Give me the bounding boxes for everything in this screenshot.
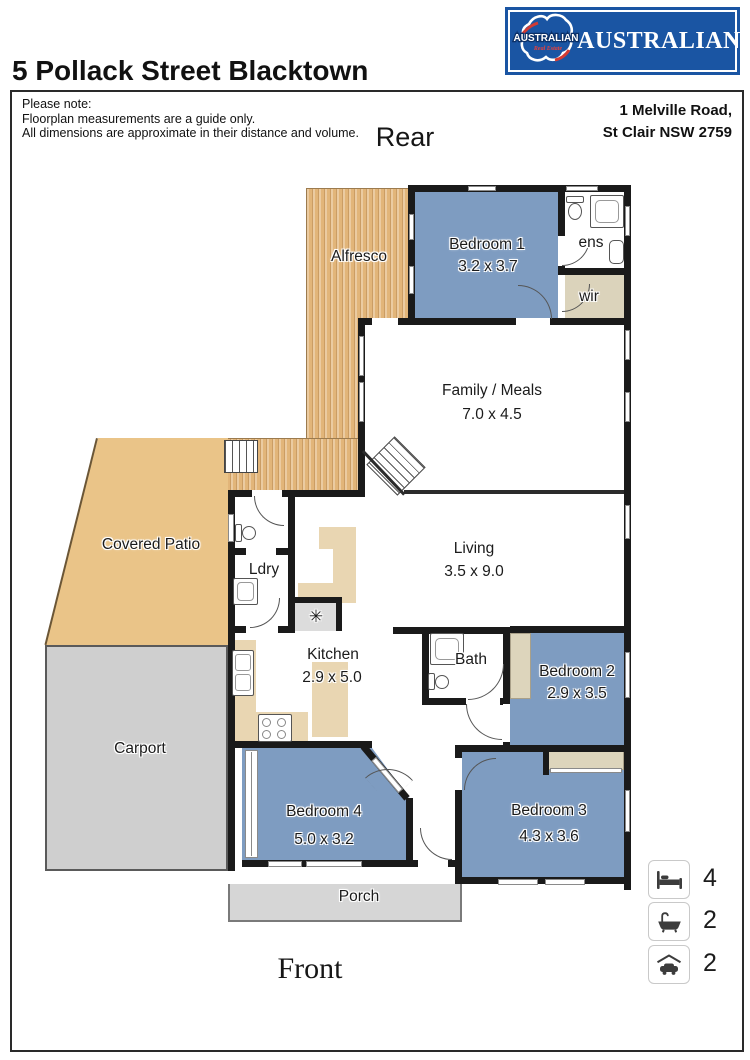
bathrooms-count: 2: [698, 906, 722, 935]
wall: [288, 490, 295, 633]
deck-strip: [306, 322, 358, 438]
door-opening: [455, 758, 462, 790]
stove-burner: [262, 730, 271, 739]
toilet-icon: [566, 196, 584, 203]
bed-icon: [656, 870, 683, 890]
stove-burner: [262, 718, 271, 727]
kitchen-pantry: [319, 527, 356, 549]
bedrooms-summary-box: [648, 860, 690, 899]
sliding-door: [359, 336, 364, 376]
robe-slider: [550, 768, 622, 773]
wall: [455, 877, 631, 884]
stove-burner: [277, 718, 286, 727]
patio-stairs: [224, 440, 258, 473]
laundry-trough-icon: [237, 582, 254, 601]
window: [498, 879, 538, 885]
car-icon: [656, 954, 682, 976]
room-label-bedroom2: Bedroom 2: [539, 663, 615, 681]
carport-area: [45, 645, 228, 871]
bedroom2-robe: [510, 633, 531, 699]
window: [409, 266, 414, 294]
window: [409, 214, 414, 240]
floorplan: ✳: [0, 0, 750, 1060]
window: [625, 790, 630, 832]
kitchen-pantry: [333, 547, 356, 585]
wall: [543, 745, 549, 775]
window: [545, 879, 585, 885]
wall: [404, 490, 624, 494]
room-label-family: Family / Meals: [442, 382, 542, 400]
slider-track: [251, 752, 252, 856]
wall: [558, 268, 624, 275]
kitchen-sink-icon: [235, 654, 251, 671]
wall: [228, 741, 372, 748]
wall: [408, 185, 415, 325]
wall: [228, 490, 365, 497]
room-dims-living: 3.5 x 9.0: [444, 563, 503, 581]
window: [306, 861, 362, 867]
window: [625, 652, 630, 698]
window: [268, 861, 302, 867]
room-dims-bedroom1: 3.2 x 3.7: [458, 258, 517, 276]
hot-water-symbol: ✳: [309, 607, 323, 627]
room-label-bath: Bath: [455, 651, 487, 669]
window: [566, 186, 598, 191]
sliding-door: [359, 382, 364, 422]
window: [625, 505, 630, 539]
bath-icon: [656, 911, 683, 933]
toilet-icon: [428, 673, 435, 690]
room-label-wir: wir: [579, 288, 599, 306]
stove-burner: [277, 730, 286, 739]
room-label-carport: Carport: [114, 740, 166, 758]
door-opening: [516, 318, 550, 325]
wall: [422, 627, 429, 705]
bedrooms-count: 4: [698, 864, 722, 893]
wall: [510, 626, 624, 633]
room-dims-bedroom2: 2.9 x 3.5: [547, 685, 606, 703]
window: [468, 186, 496, 191]
wall: [336, 597, 342, 631]
wall: [406, 798, 413, 867]
door-opening: [503, 704, 510, 742]
cars-count: 2: [698, 949, 722, 978]
toilet-icon: [568, 203, 582, 220]
toilet-icon: [242, 526, 256, 540]
wall: [292, 597, 342, 603]
room-dims-bedroom3: 4.3 x 3.6: [519, 828, 578, 846]
toilet-icon: [435, 675, 449, 689]
room-label-porch: Porch: [339, 888, 380, 906]
window: [228, 514, 234, 542]
door-opening: [418, 860, 448, 867]
toilet-icon: [235, 524, 242, 542]
wall: [455, 745, 624, 752]
room-label-covered-patio: Covered Patio: [102, 536, 200, 554]
room-label-bedroom1: Bedroom 1: [449, 236, 525, 254]
room-dims-bedroom4: 5.0 x 3.2: [294, 831, 353, 849]
kitchen-sink-icon: [235, 674, 251, 691]
cars-summary-box: [648, 945, 690, 984]
room-label-bedroom3: Bedroom 3: [511, 802, 587, 820]
room-label-living: Living: [454, 540, 495, 558]
room-label-bedroom4: Bedroom 4: [286, 803, 362, 821]
room-dims-family: 7.0 x 4.5: [462, 406, 521, 424]
door-opening: [372, 318, 398, 325]
room-label-alfresco: Alfresco: [331, 248, 387, 266]
shower-tray-icon: [595, 200, 619, 223]
basin-icon: [609, 240, 624, 264]
bathrooms-summary-box: [648, 902, 690, 941]
window: [625, 330, 630, 360]
window: [625, 392, 630, 422]
room-label-ens: ens: [579, 234, 604, 252]
room-dims-kitchen: 2.9 x 5.0: [302, 669, 361, 687]
room-label-kitchen: Kitchen: [307, 646, 359, 664]
door-opening: [246, 548, 276, 555]
window: [625, 206, 630, 236]
room-label-ldry: Ldry: [249, 561, 279, 579]
